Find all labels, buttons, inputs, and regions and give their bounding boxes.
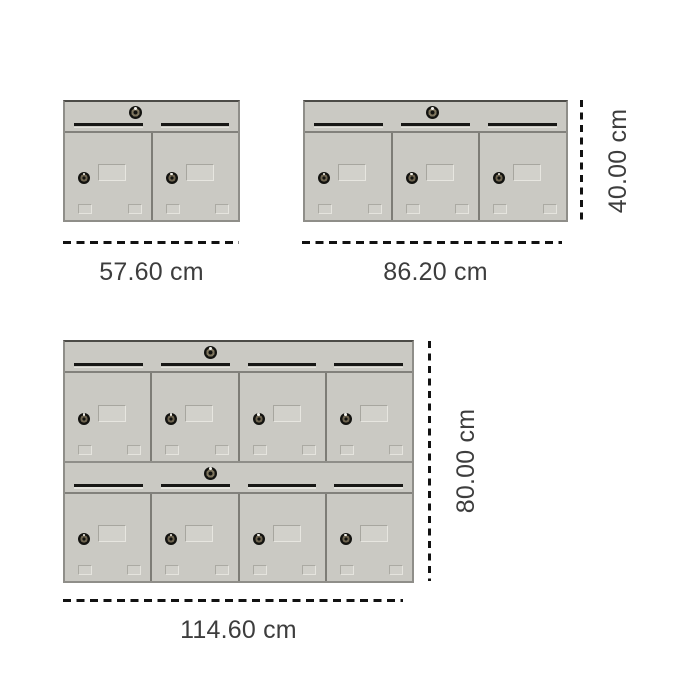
hinge-detail-icon — [318, 204, 332, 214]
mailbox-door — [327, 494, 412, 582]
door-lock-icon — [253, 533, 265, 545]
door-lock-icon — [78, 413, 90, 425]
mailbox-door — [152, 494, 239, 582]
mailbox-door — [240, 494, 327, 582]
nameplate — [360, 525, 388, 542]
door-lock-icon — [165, 413, 177, 425]
dimension-diagram: 57.60 cm 86.20 cm 40.00 cm 114.60 cm 80.… — [0, 0, 700, 700]
door-lock-icon — [78, 172, 90, 184]
hinge-detail-icon — [253, 445, 267, 455]
mail-slot-icon — [479, 102, 566, 131]
hinge-detail-icon — [78, 204, 92, 214]
cabinet-bank — [305, 102, 566, 220]
nameplate — [185, 525, 213, 542]
mail-slot-icon — [65, 463, 152, 492]
mailbox-door — [65, 373, 152, 461]
width-label-small: 57.60 cm — [63, 257, 240, 287]
mail-slot-icon — [152, 102, 239, 131]
height-label-large: 80.00 cm — [451, 401, 481, 521]
door-lock-icon — [78, 533, 90, 545]
hinge-detail-icon — [78, 565, 92, 575]
cabinet-top-panel — [305, 102, 566, 133]
cabinet-unit-medium — [303, 100, 568, 222]
mailbox-door — [153, 133, 239, 220]
latch-detail-icon — [215, 445, 229, 455]
mailbox-door — [240, 373, 327, 461]
latch-detail-icon — [543, 204, 557, 214]
cabinet-top-panel — [65, 463, 412, 494]
hinge-detail-icon — [493, 204, 507, 214]
latch-detail-icon — [127, 565, 141, 575]
door-row — [65, 494, 412, 582]
width-label-medium: 86.20 cm — [303, 257, 568, 287]
cabinet-bank — [65, 102, 238, 220]
height-dimension-line-large — [428, 341, 431, 581]
door-lock-icon — [406, 172, 418, 184]
hinge-detail-icon — [78, 445, 92, 455]
width-dimension-line-large — [63, 599, 403, 602]
door-row — [65, 133, 238, 220]
mailbox-door — [327, 373, 412, 461]
nameplate — [98, 525, 126, 542]
door-lock-icon — [493, 172, 505, 184]
mail-slot-icon — [305, 102, 392, 131]
cabinet-bank-lower — [65, 461, 412, 582]
mailbox-door — [480, 133, 566, 220]
nameplate — [513, 164, 541, 181]
latch-detail-icon — [368, 204, 382, 214]
width-label-large: 114.60 cm — [63, 615, 414, 645]
height-dimension-line-medium — [580, 100, 583, 225]
mail-slot-icon — [239, 463, 326, 492]
door-lock-icon — [166, 172, 178, 184]
nameplate — [186, 164, 214, 181]
door-lock-icon — [165, 533, 177, 545]
cabinet-unit-small — [63, 100, 240, 222]
mail-slot-icon — [152, 463, 239, 492]
mailbox-door — [65, 133, 153, 220]
width-dimension-line-medium — [302, 241, 562, 244]
mail-slot-icon — [152, 342, 239, 371]
height-label-medium: 40.00 cm — [603, 101, 633, 221]
door-row — [65, 373, 412, 461]
latch-detail-icon — [389, 445, 403, 455]
door-row — [305, 133, 566, 220]
door-lock-icon — [253, 413, 265, 425]
door-lock-icon — [340, 413, 352, 425]
hinge-detail-icon — [340, 445, 354, 455]
latch-detail-icon — [215, 204, 229, 214]
hinge-detail-icon — [165, 445, 179, 455]
hinge-detail-icon — [340, 565, 354, 575]
nameplate — [273, 525, 301, 542]
width-dimension-line-small — [63, 241, 239, 244]
master-lock-icon — [204, 467, 217, 480]
latch-detail-icon — [302, 565, 316, 575]
cabinet-unit-large — [63, 340, 414, 583]
mail-slot-icon — [325, 463, 412, 492]
latch-detail-icon — [128, 204, 142, 214]
mailbox-door — [65, 494, 152, 582]
hinge-detail-icon — [406, 204, 420, 214]
mailbox-door — [305, 133, 393, 220]
door-lock-icon — [318, 172, 330, 184]
mail-slot-icon — [65, 342, 152, 371]
mail-slot-icon — [239, 342, 326, 371]
cabinet-top-panel — [65, 342, 412, 373]
mailbox-door — [152, 373, 239, 461]
hinge-detail-icon — [165, 565, 179, 575]
latch-detail-icon — [389, 565, 403, 575]
nameplate — [273, 405, 301, 422]
latch-detail-icon — [455, 204, 469, 214]
nameplate — [426, 164, 454, 181]
mail-slot-icon — [325, 342, 412, 371]
hinge-detail-icon — [166, 204, 180, 214]
nameplate — [185, 405, 213, 422]
master-lock-icon — [426, 106, 439, 119]
cabinet-bank-upper — [65, 342, 412, 461]
latch-detail-icon — [127, 445, 141, 455]
latch-detail-icon — [302, 445, 316, 455]
mailbox-door — [393, 133, 481, 220]
nameplate — [98, 405, 126, 422]
door-lock-icon — [340, 533, 352, 545]
nameplate — [98, 164, 126, 181]
cabinet-top-panel — [65, 102, 238, 133]
nameplate — [338, 164, 366, 181]
nameplate — [360, 405, 388, 422]
latch-detail-icon — [215, 565, 229, 575]
hinge-detail-icon — [253, 565, 267, 575]
